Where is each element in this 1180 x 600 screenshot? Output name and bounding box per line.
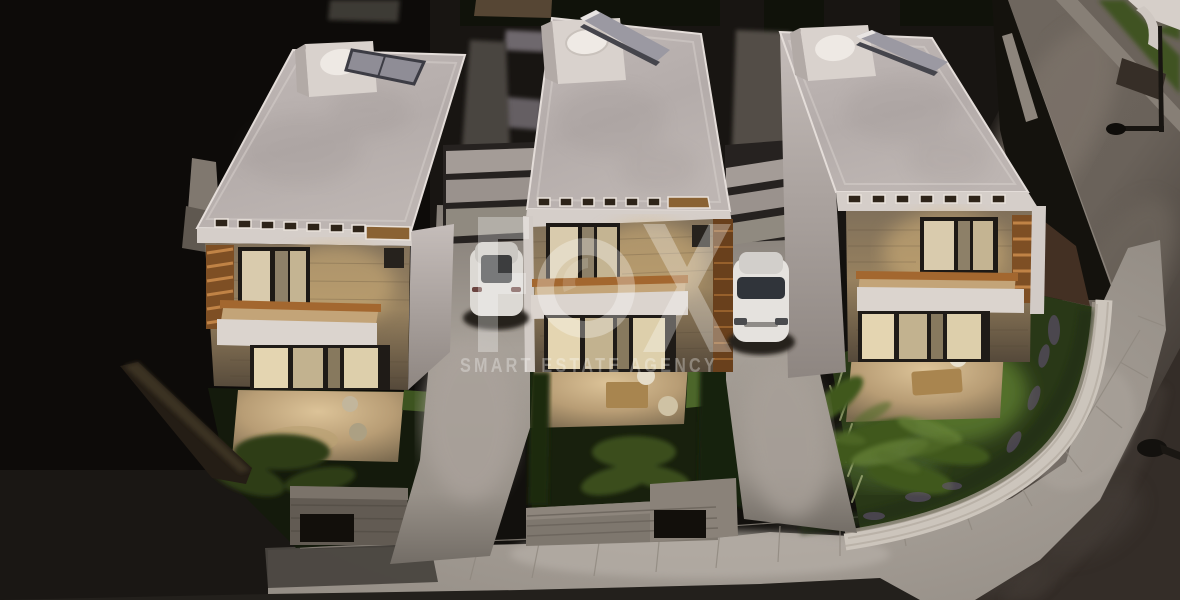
svg-text:SMART ESTATE AGENCY: SMART ESTATE AGENCY <box>460 355 718 377</box>
